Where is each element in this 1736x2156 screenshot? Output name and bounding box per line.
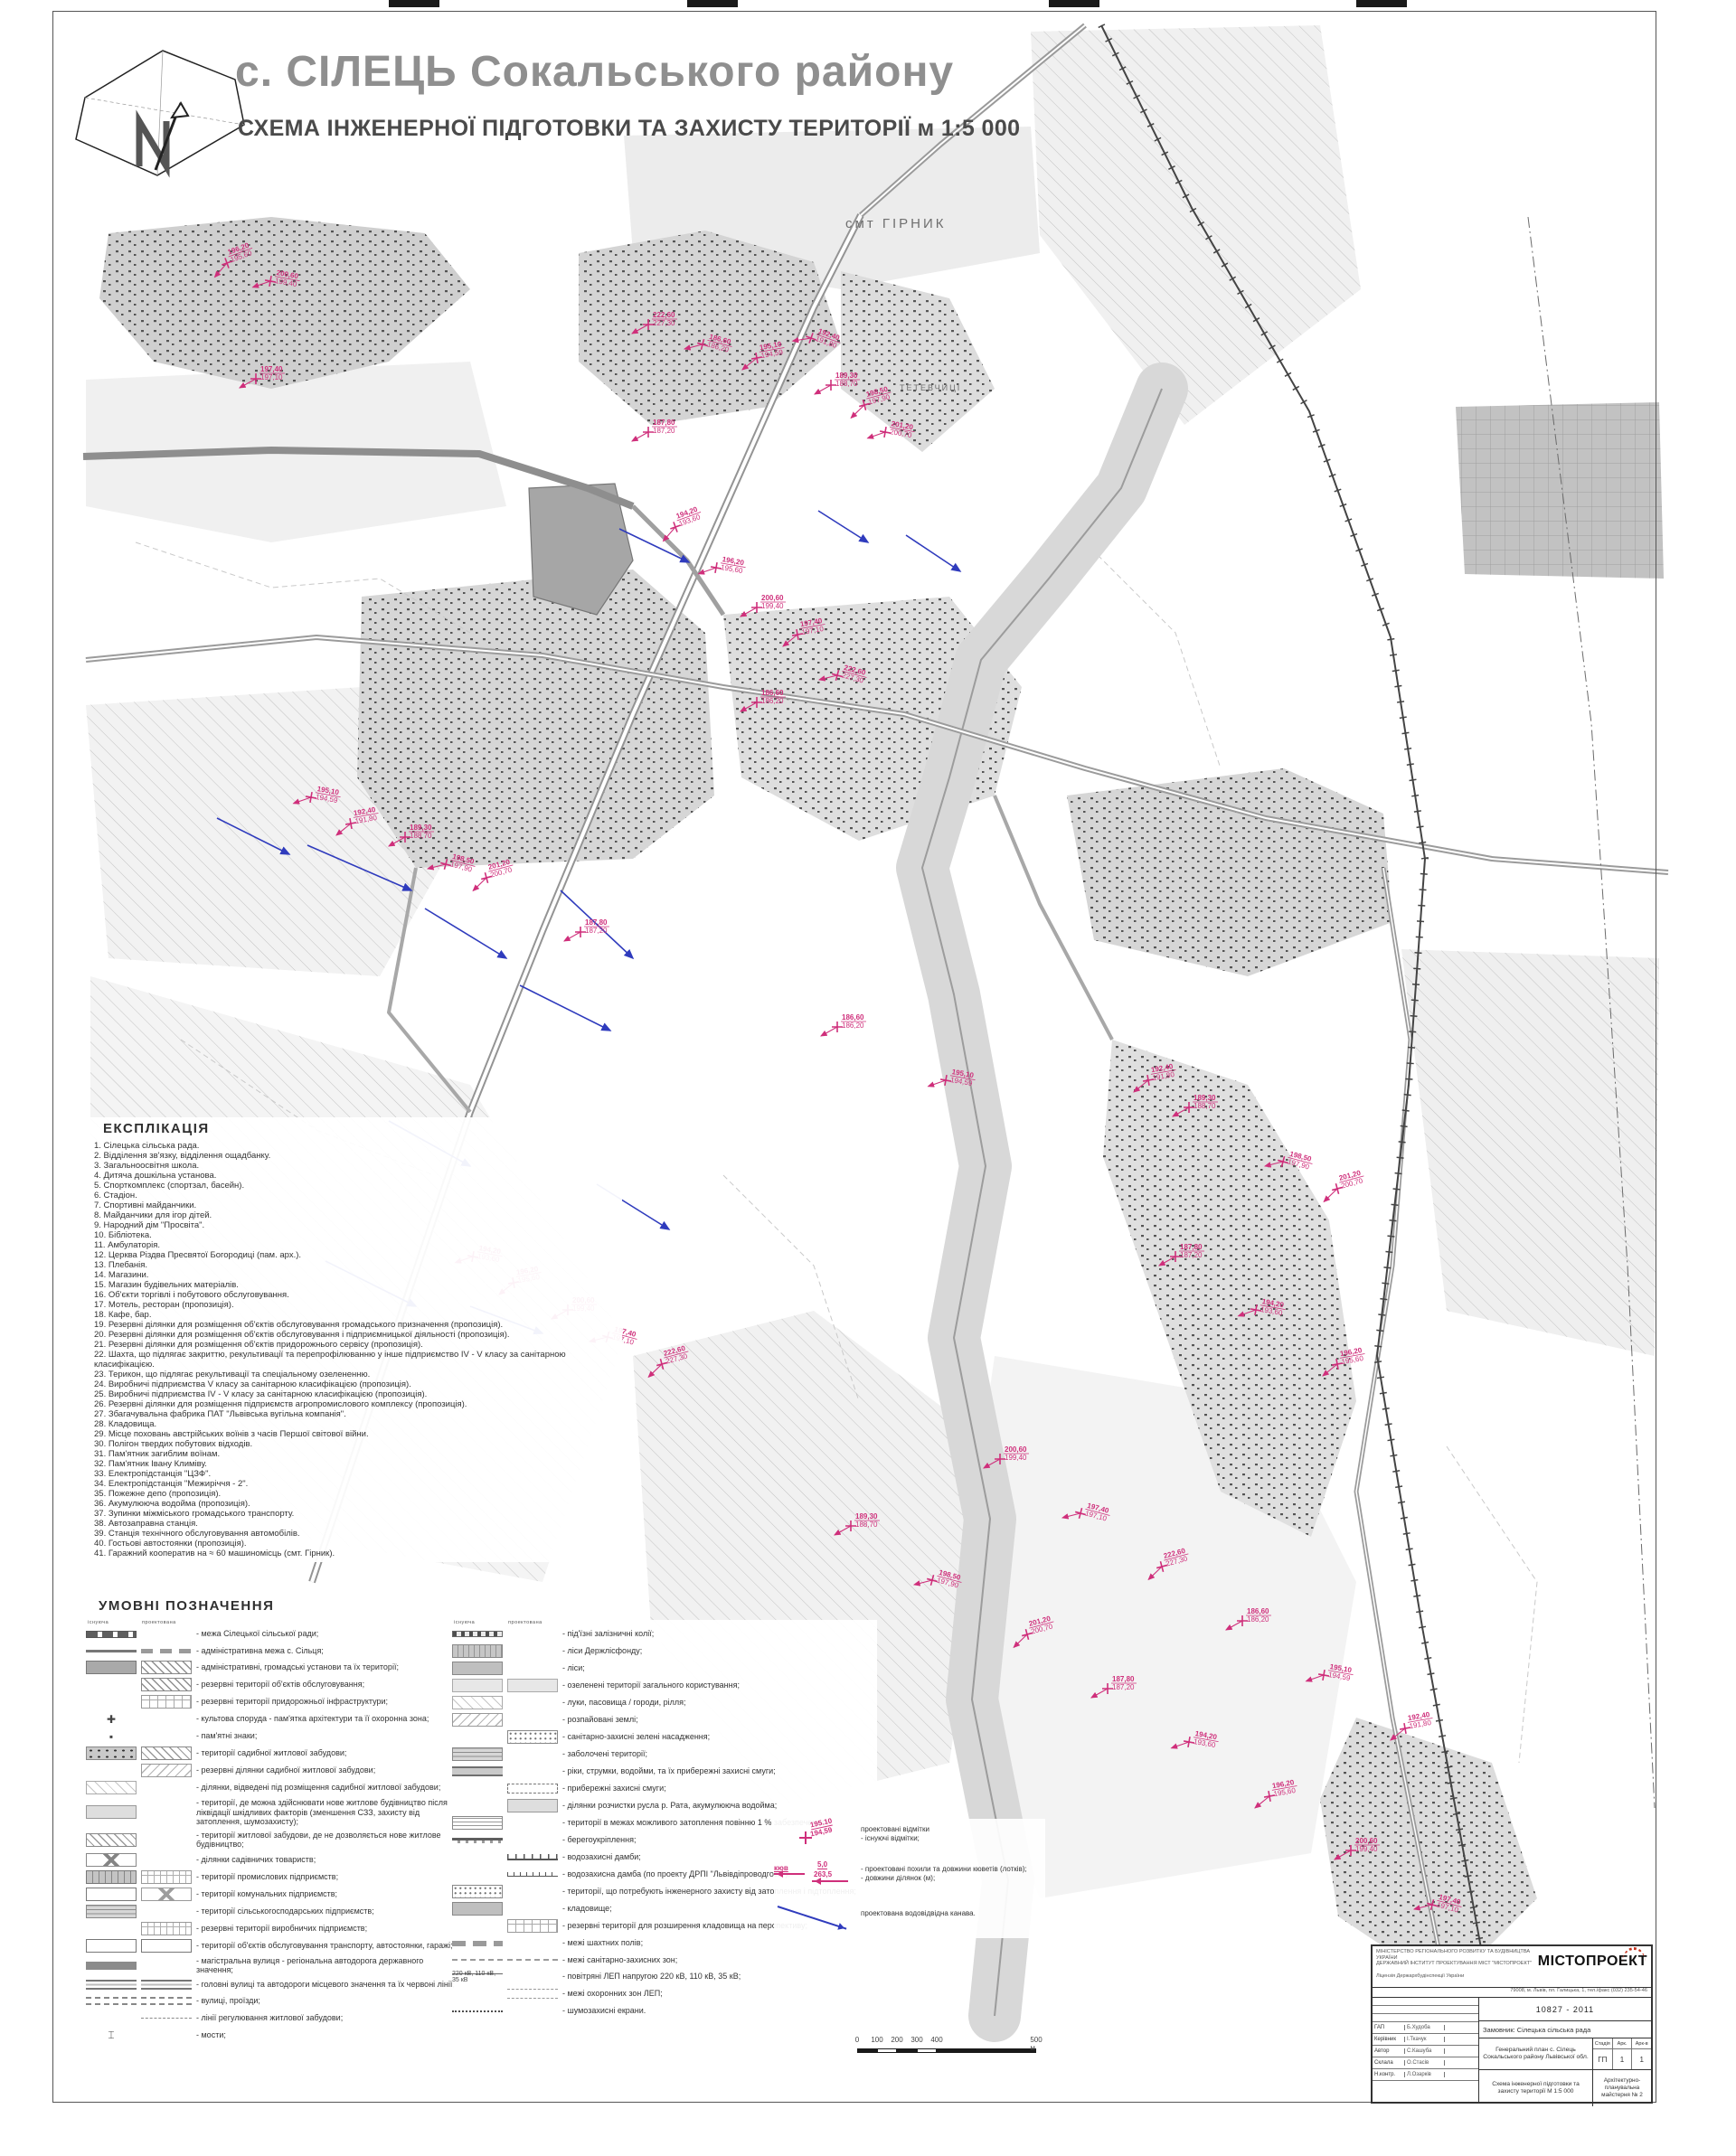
logo-arc-icon xyxy=(1622,1947,1646,1963)
explication-item: 11. Амбулаторія. xyxy=(94,1240,617,1250)
legend-label: - ділянки, відведені під розміщення сади… xyxy=(196,1783,440,1793)
legend-row: - санітарно-захисні зелені насадження; xyxy=(452,1730,877,1744)
legend-label: - території житлової забудови, де не доз… xyxy=(196,1831,455,1850)
legend-row: - межі санітарно-захисних зон; xyxy=(452,1954,877,1966)
legend-swatch-projected xyxy=(507,1679,558,1692)
explication-item: 6. Стадіон. xyxy=(94,1191,617,1200)
legend-swatch-existing: ⌶ xyxy=(86,2029,137,2042)
legend-row: - межі шахтних полів; xyxy=(452,1936,877,1950)
legend-row: - ділянки, відведені під розміщення сади… xyxy=(86,1781,455,1794)
legend-label: - ділянки садівничих товариств; xyxy=(196,1855,316,1865)
signature-table: ГАПБ.ХудобаКерівникІ.ТкачукАвторС.Кашуба… xyxy=(1373,1998,1479,2104)
legend-label: - водозахисні дамби; xyxy=(562,1852,641,1862)
legend-swatch-projected xyxy=(507,1833,558,1847)
legend-row: - головні вулиці та автодороги місцевого… xyxy=(86,1979,455,1991)
explication-item: 5. Спорткомплекс (спортзал, басейн). xyxy=(94,1181,617,1191)
legend-swatch-existing xyxy=(452,1816,503,1830)
signature-row: Н.контр.Л.Озарків xyxy=(1373,2069,1478,2081)
legend-swatch-existing xyxy=(452,1696,503,1709)
legend-column-headers: існуюча проектована xyxy=(88,1620,455,1625)
project-title-cell: Генеральний план с. Сілець Сокальського … xyxy=(1479,2038,1593,2069)
pink-legend-label: проектовані відмітки xyxy=(861,1825,929,1834)
legend-swatch-existing xyxy=(86,1650,137,1652)
legend-swatch-projected xyxy=(141,1853,192,1867)
legend-pink-slopes: кюв 5,0 263,5 - проектовані похили та до… xyxy=(774,1859,1045,1889)
legend-row: - ділянки садівничих товариств; xyxy=(86,1853,455,1867)
mistoproekt-logo: МІСТОПРОЕКТ xyxy=(1538,1954,1647,1970)
legend-swatch-existing: ✚ xyxy=(86,1712,137,1726)
legend-swatch-existing xyxy=(452,1782,503,1795)
legend-swatch-projected xyxy=(507,1959,558,1961)
legend-row: ▪- пам'ятні знаки; xyxy=(86,1729,455,1743)
explication-item: 27. Збагачувальна фабрика ПАТ "Львівська… xyxy=(94,1409,617,1419)
legend-swatch-projected xyxy=(507,1662,558,1675)
legend-label: - адміністративні, громадські установи т… xyxy=(196,1662,399,1672)
legend-swatch-existing xyxy=(86,1905,137,1918)
legend-swatch-projected xyxy=(141,1764,192,1777)
pink-legend-label: - довжини ділянок (м); xyxy=(861,1874,1027,1883)
legend-colhead-projected: проектована xyxy=(142,1620,194,1625)
legend-label: - території промислових підприємств; xyxy=(196,1872,338,1882)
legend-label: - прибережні захисні смуги; xyxy=(562,1784,666,1794)
legend-row: - резервні території придорожньої інфрас… xyxy=(86,1695,455,1709)
legend-row: 220 кВ, 110 кВ, 35 кВ- повітряні ЛЕП нап… xyxy=(452,1970,877,1983)
legend-label: - магістральна вулиця - регіональна авто… xyxy=(196,1956,455,1975)
legend-row: - магістральна вулиця - регіональна авто… xyxy=(86,1956,455,1975)
explication-item: 7. Спортивні майданчики. xyxy=(94,1200,617,1210)
explication-item: 10. Бібліотека. xyxy=(94,1230,617,1240)
legend-swatch-existing xyxy=(86,1888,137,1901)
legend-row: - території житлової забудови, де не доз… xyxy=(86,1831,455,1850)
sheet-title-cell: Схема інженерної підготовки та захисту т… xyxy=(1479,2070,1593,2106)
legend-label: - розпайовані землі; xyxy=(562,1715,638,1725)
legend-pink-marks: 195.10 194,59 проектовані відмітки - існ… xyxy=(774,1819,1045,1850)
stamp-org-line2: ДЕРЖАВНИЙ ІНСТИТУТ ПРОЕКТУВАННЯ МІСТ "МІ… xyxy=(1376,1961,1548,1967)
legend-row: - ліси; xyxy=(452,1662,877,1675)
legend-swatch-projected xyxy=(141,1980,192,1990)
drain-ditch-symbol xyxy=(774,1898,861,1929)
legend-swatch-existing xyxy=(86,1678,137,1691)
legend-swatch-existing xyxy=(452,1730,503,1744)
legend-row: - розпайовані землі; xyxy=(452,1713,877,1727)
legend-swatch-projected xyxy=(507,1644,558,1658)
explication-item: 28. Кладовища. xyxy=(94,1419,617,1429)
legend-swatch-existing xyxy=(86,1962,137,1970)
stamp-address: 79008, м. Львів, пл. Галицька, 1, тел./ф… xyxy=(1373,1988,1651,1998)
legend-swatch-existing xyxy=(452,1662,503,1675)
explication-heading: ЕКСПЛІКАЦІЯ xyxy=(103,1121,617,1136)
legend-row: - межі охоронних зон ЛЕП; xyxy=(452,1987,877,2001)
legend-label: - ділянки розчистки русла р. Рата, акуму… xyxy=(562,1801,777,1811)
legend-label: - луки, пасовища / городи, рілля; xyxy=(562,1698,686,1708)
legend-label: - лінії регулювання житлової забудови; xyxy=(196,2013,343,2023)
explication-item: 18. Кафе, бар. xyxy=(94,1310,617,1320)
legend-label: - заболочені території; xyxy=(562,1749,647,1759)
explication-item: 3. Загальноосвітня школа. xyxy=(94,1161,617,1171)
legend-swatch-projected xyxy=(141,1888,192,1901)
legend-swatch-projected xyxy=(507,1854,558,1860)
explication-item: 39. Станція технічного обслуговування ав… xyxy=(94,1529,617,1539)
legend-swatch-projected xyxy=(141,1781,192,1794)
legend-label: - території сільськогосподарських підпри… xyxy=(196,1907,374,1916)
legend-row: - адміністративна межа с. Сільця; xyxy=(86,1644,455,1657)
explication-item: 15. Магазин будівельних матеріалів. xyxy=(94,1280,617,1290)
legend-label: - межа Сілецької сільської ради; xyxy=(196,1629,318,1639)
legend-swatch-existing xyxy=(452,1838,503,1843)
legend-row: - озеленені території загального користу… xyxy=(452,1679,877,1692)
legend-swatch-existing xyxy=(452,1713,503,1727)
legend-swatch-existing xyxy=(86,1939,137,1953)
legend-label: - межі шахтних полів; xyxy=(562,1938,643,1948)
legend-swatch-existing: 220 кВ, 110 кВ, 35 кВ xyxy=(452,1973,503,1981)
legend-label: - ліси; xyxy=(562,1663,585,1673)
north-arrow-icon xyxy=(65,42,255,191)
legend-swatch-existing xyxy=(86,1695,137,1709)
signature-row-empty xyxy=(1373,2006,1478,2014)
legend-swatch-existing xyxy=(86,1746,137,1760)
legend-swatch-projected xyxy=(507,1989,558,1999)
legend-swatch-projected xyxy=(507,1784,558,1794)
legend-label: - мости; xyxy=(196,2030,226,2040)
project-number: 10827 - 2011 xyxy=(1479,1998,1651,2021)
legend-swatch-projected xyxy=(507,1713,558,1727)
legend-label: - території об'єктів обслуговування тран… xyxy=(196,1941,453,1951)
legend-label: - території садибної житлової забудови; xyxy=(196,1748,346,1758)
legend-swatch-existing xyxy=(86,1922,137,1935)
explication-item: 17. Мотель, ресторан (пропозиція). xyxy=(94,1300,617,1310)
explication-item: 1. Сілецька сільська рада. xyxy=(94,1141,617,1151)
legend-swatch-existing xyxy=(86,1805,137,1819)
legend-swatch-projected xyxy=(507,1799,558,1812)
legend-swatch-projected xyxy=(507,1816,558,1830)
explication-item: 19. Резервні ділянки для розміщення об'є… xyxy=(94,1320,617,1330)
legend-row: - луки, пасовища / городи, рілля; xyxy=(452,1696,877,1709)
explication-item: 20. Резервні ділянки для розміщення об'є… xyxy=(94,1330,617,1340)
legend-colhead-existing: існуюча xyxy=(88,1620,140,1625)
legend-column-headers: існуюча проектована xyxy=(454,1620,877,1625)
legend-row: - території, де можна здійснювати нове ж… xyxy=(86,1798,455,1827)
signature-row: ГАПБ.Худоба xyxy=(1373,2022,1478,2034)
legend-row: - території садибної житлової забудови; xyxy=(86,1746,455,1760)
legend-swatch-projected xyxy=(141,1729,192,1743)
legend-swatch-existing xyxy=(452,1747,503,1761)
explication-item: 14. Магазини. xyxy=(94,1270,617,1280)
legend-swatch-projected xyxy=(507,1765,558,1778)
legend-label: - резервні ділянки садибної житлової заб… xyxy=(196,1765,375,1775)
legend-swatch-existing xyxy=(452,1885,503,1898)
legend-row: - межа Сілецької сільської ради; xyxy=(86,1627,455,1641)
legend-row: - вулиці, проїзди; xyxy=(86,1995,455,2008)
legend-swatch-projected xyxy=(141,1833,192,1847)
legend-swatch-projected xyxy=(507,1627,558,1641)
legend-label: - ліси Держлісфонду; xyxy=(562,1646,642,1656)
fold-mark xyxy=(1049,0,1099,7)
fold-mark xyxy=(389,0,439,7)
plan-sheet: { "page": { "title": "с. СІЛЕЦЬ Сокальсь… xyxy=(0,0,1736,2156)
legend-swatch-existing xyxy=(86,1980,137,1990)
legend-panel: УМОВНІ ПОЗНАЧЕННЯ існуюча проектована - … xyxy=(86,1598,1053,1621)
legend-row: - резервні території об'єктів обслуговув… xyxy=(86,1678,455,1691)
legend-swatch-projected xyxy=(141,1712,192,1726)
legend-row: ✚- культова споруда - пам'ятка архітекту… xyxy=(86,1712,455,1726)
legend-swatch-projected xyxy=(141,1627,192,1641)
legend-swatch-existing xyxy=(86,1833,137,1847)
explication-item: 31. Пам'ятник загиблим воїнам. xyxy=(94,1449,617,1459)
legend-row: - резервні території виробничих підприєм… xyxy=(86,1922,455,1935)
legend-swatch-projected xyxy=(141,2018,192,2019)
scale-bar-segment xyxy=(857,2048,877,2053)
legend-swatch-existing xyxy=(452,1902,503,1916)
scale-bar-segment xyxy=(877,2048,897,2053)
legend-swatch-existing xyxy=(452,1850,503,1864)
legend-swatch-existing xyxy=(86,1997,137,2005)
stamp-license: Ліцензія Держархбудінспекції України xyxy=(1376,1973,1548,1980)
scale-bar-label: 0 xyxy=(855,2036,859,2044)
scale-bar-label: 100 xyxy=(871,2036,882,2044)
legend-swatch-projected xyxy=(507,1872,558,1877)
scale-bar-label: 200 xyxy=(891,2036,902,2044)
legend-swatch-existing: ▪ xyxy=(86,1729,137,1743)
legend-row: - заболочені території; xyxy=(452,1747,877,1761)
legend-swatch-projected xyxy=(141,2029,192,2042)
legend-label: - санітарно-захисні зелені насадження; xyxy=(562,1732,710,1742)
legend-row: - адміністративні, громадські установи т… xyxy=(86,1661,455,1674)
explication-item: 9. Народний дім "Просвіта". xyxy=(94,1220,617,1230)
legend-row: - території промислових підприємств; xyxy=(86,1870,455,1884)
legend-label: - повітряні ЛЕП напругою 220 кВ, 110 кВ,… xyxy=(562,1972,741,1982)
elevation-marks-symbol: 195.10 194,59 xyxy=(774,1819,861,1850)
explication-item: 29. Місце поховань австрійських воїнів з… xyxy=(94,1429,617,1439)
stamp-org-line1: МІНІСТЕРСТВО РЕГІОНАЛЬНОГО РОЗВИТКУ ТА Б… xyxy=(1376,1949,1548,1961)
scale-bar-segment xyxy=(897,2048,917,2053)
legend-swatch-existing xyxy=(452,1959,503,1961)
explication-item: 25. Виробничі підприємства IV - V класу … xyxy=(94,1389,617,1399)
legend-row: - ділянки розчистки русла р. Рата, акуму… xyxy=(452,1799,877,1812)
legend-label: - території комунальних підприємств; xyxy=(196,1889,337,1899)
legend-label: - території, де можна здійснювати нове ж… xyxy=(196,1798,455,1827)
legend-swatch-existing xyxy=(452,1644,503,1658)
legend-swatch-projected xyxy=(507,2004,558,2018)
legend-swatch-projected xyxy=(141,1870,192,1884)
legend-row: - резервні ділянки садибної житлової заб… xyxy=(86,1764,455,1777)
legend-label: - берегоукріплення; xyxy=(562,1835,636,1845)
legend-swatch-projected xyxy=(141,1939,192,1953)
legend-label: - межі охоронних зон ЛЕП; xyxy=(562,1989,663,1999)
explication-item: 16. Об'єкти торгівлі і побутового обслуг… xyxy=(94,1290,617,1300)
legend-label: - під'їзні залізничні колії; xyxy=(562,1629,654,1639)
legend-swatch-projected xyxy=(507,1885,558,1898)
legend-swatch-projected xyxy=(141,1997,192,2005)
scale-bar-label: 500 м xyxy=(1030,2036,1042,2052)
legend-swatch-existing xyxy=(86,1631,137,1638)
stage-cell: Арк.1 xyxy=(1613,2038,1633,2069)
legend-row: - під'їзні залізничні колії; xyxy=(452,1627,877,1641)
stage-cell: СтадіяГП xyxy=(1593,2038,1613,2069)
legend-swatch-projected xyxy=(141,1922,192,1935)
explication-item: 26. Резервні ділянки для розміщення підп… xyxy=(94,1399,617,1409)
legend-swatch-projected xyxy=(141,1746,192,1760)
legend-swatch-projected xyxy=(141,1695,192,1709)
legend-label: - кладовище; xyxy=(562,1904,612,1914)
explication-item: 21. Резервні ділянки для розміщення об'є… xyxy=(94,1340,617,1350)
page-subtitle: СХЕМА ІНЖЕНЕРНОЇ ПІДГОТОВКИ ТА ЗАХИСТУ Т… xyxy=(238,116,1020,142)
signature-row: КерівникІ.Ткачук xyxy=(1373,2034,1478,2046)
explication-item: 37. Зупинки міжміського громадського тра… xyxy=(94,1509,617,1519)
explication-item: 32. Пам'ятник Івану Климіву. xyxy=(94,1459,617,1469)
legend-pink-panel: 195.10 194,59 проектовані відмітки - існ… xyxy=(774,1819,1045,1938)
legend-swatch-projected xyxy=(141,1805,192,1819)
legend-swatch-existing xyxy=(452,1679,503,1692)
pink-legend-label: - проектовані похили та довжини кюветів … xyxy=(861,1865,1027,1874)
legend-swatch-existing xyxy=(86,1764,137,1777)
legend-swatch-existing xyxy=(452,1919,503,1933)
legend-swatch-projected xyxy=(141,1905,192,1918)
legend-swatch-projected xyxy=(507,1936,558,1950)
legend-swatch-existing xyxy=(452,2010,503,2012)
legend-drain-ditch: проектована водовідвідна канава. xyxy=(774,1898,1045,1929)
legend-swatch-existing xyxy=(452,1631,503,1637)
legend-row: - території об'єктів обслуговування тран… xyxy=(86,1939,455,1953)
explication-item: 12. Церква Різдва Пресвятої Богородиці (… xyxy=(94,1250,617,1260)
department-cell: Архітектурно-планувальна майстерня № 2 xyxy=(1593,2070,1651,2106)
stage-cells: СтадіяГПАрк.1Арк-в1 xyxy=(1593,2038,1651,2069)
title-block: МІНІСТЕРСТВО РЕГІОНАЛЬНОГО РОЗВИТКУ ТА Б… xyxy=(1371,1944,1653,2104)
signature-row: СклалаО.Стасів xyxy=(1373,2057,1478,2069)
legend-label: - культова споруда - пам'ятка архітектур… xyxy=(196,1714,429,1724)
legend-label: - резервні території придорожньої інфрас… xyxy=(196,1697,388,1707)
legend-row: - території сільськогосподарських підпри… xyxy=(86,1905,455,1918)
stage-cell: Арк-в1 xyxy=(1632,2038,1651,2069)
legend-label: - озеленені території загального користу… xyxy=(562,1681,740,1690)
pink-arrow-icon xyxy=(812,1880,848,1882)
explication-item: 22. Шахта, що підлягає закриттю, рекульт… xyxy=(94,1350,617,1370)
legend-swatch-projected xyxy=(507,1747,558,1761)
legend-swatch-existing xyxy=(452,1766,503,1776)
legend-swatch-existing xyxy=(86,1781,137,1794)
legend-label: - адміністративна межа с. Сільця; xyxy=(196,1646,324,1656)
legend-label: - ріки, струмки, водойми, та їх прибереж… xyxy=(562,1766,776,1776)
explication-item: 34. Електропідстанція "Межиріччя - 2". xyxy=(94,1479,617,1489)
explication-item: 40. Гостьові автостоянки (пропозиція). xyxy=(94,1539,617,1549)
legend-label: - межі санітарно-захисних зон; xyxy=(562,1955,677,1965)
legend-row: - лінії регулювання житлової забудови; xyxy=(86,2011,455,2025)
legend-swatch-projected xyxy=(141,1678,192,1691)
legend-label: - резервні території виробничих підприєм… xyxy=(196,1924,367,1934)
client-row: Замовник: Сілецька сільська рада xyxy=(1479,2021,1651,2038)
sheet: 196,20195,60200,60199,40197,40197,10222,… xyxy=(0,0,1736,2156)
pink-legend-label: - існуючі відмітки; xyxy=(861,1834,929,1843)
legend-row: - ліси Держлісфонду; xyxy=(452,1644,877,1658)
explication-item: 13. Плебанія. xyxy=(94,1260,617,1270)
legend-swatch-existing xyxy=(86,1661,137,1674)
legend-row: - території комунальних підприємств; xyxy=(86,1888,455,1901)
pink-legend-label: проектована водовідвідна канава. xyxy=(861,1909,976,1918)
slope-length-symbol: кюв 5,0 263,5 xyxy=(774,1859,861,1889)
legend-swatch-projected xyxy=(141,1649,192,1653)
fold-mark xyxy=(1356,0,1407,7)
scale-bar-segment xyxy=(917,2048,937,2053)
legend-swatch-projected xyxy=(507,1970,558,1983)
explication-item: 41. Гаражний кооператив на ≈ 60 машиномі… xyxy=(94,1549,617,1558)
explication-item: 35. Пожежне депо (пропозиція). xyxy=(94,1489,617,1499)
scale-bar-segment xyxy=(937,2048,1036,2053)
legend-label: - резервні території для розширення клад… xyxy=(562,1921,807,1931)
explication-item: 2. Відділення зв'язку, відділення ощадба… xyxy=(94,1151,617,1161)
explication-panel: ЕКСПЛІКАЦІЯ 1. Сілецька сільська рада.2.… xyxy=(89,1117,622,1562)
scale-bar-label: 400 xyxy=(930,2036,942,2044)
legend-swatch-projected xyxy=(507,1730,558,1744)
legend-swatch-projected xyxy=(507,1919,558,1933)
explication-item: 23. Терикон, що підлягає рекультивації т… xyxy=(94,1370,617,1379)
signature-row-empty xyxy=(1373,2014,1478,2022)
legend-label: - резервні території об'єктів обслуговув… xyxy=(196,1680,364,1690)
legend-label: - вулиці, проїзди; xyxy=(196,1996,260,2006)
legend-row: - ріки, струмки, водойми, та їх прибереж… xyxy=(452,1765,877,1778)
explication-item: 38. Автозаправна станція. xyxy=(94,1519,617,1529)
explication-item: 36. Акумулююча водойма (пропозиція). xyxy=(94,1499,617,1509)
explication-item: 33. Електропідстанція "ЦЗФ". xyxy=(94,1469,617,1479)
legend-label: - шумозахисні екрани. xyxy=(562,2006,646,2016)
legend-label: - пам'ятні знаки; xyxy=(196,1731,257,1741)
legend-swatch-existing xyxy=(86,2011,137,2025)
legend-swatch-existing xyxy=(452,1941,503,1946)
signature-row-empty xyxy=(1373,1998,1478,2006)
legend-label: - головні вулиці та автодороги місцевого… xyxy=(196,1980,455,1990)
scale-bar-label: 300 xyxy=(910,2036,922,2044)
legend-swatch-existing xyxy=(452,1868,503,1881)
explication-item: 30. Полігон твердих побутових відходів. xyxy=(94,1439,617,1449)
signature-row: АвторС.Кашуба xyxy=(1373,2046,1478,2057)
legend-swatch-existing xyxy=(86,1853,137,1867)
page-title: с. СІЛЕЦЬ Сокальського району xyxy=(235,47,954,97)
legend-row: - прибережні захисні смуги; xyxy=(452,1782,877,1795)
legend-swatch-existing xyxy=(452,1799,503,1812)
pink-arrow-icon xyxy=(774,1873,805,1875)
legend-swatch-existing xyxy=(86,1870,137,1884)
legend-swatch-projected xyxy=(507,1902,558,1916)
legend-swatch-existing xyxy=(452,1987,503,2001)
legend-heading: УМОВНІ ПОЗНАЧЕННЯ xyxy=(99,1598,1053,1614)
fold-mark xyxy=(687,0,738,7)
legend-label: - водозахисна дамба (по проекту ДРПІ "Ль… xyxy=(562,1869,790,1879)
explication-item: 4. Дитяча дошкільна установа. xyxy=(94,1171,617,1181)
legend-row: - шумозахисні екрани. xyxy=(452,2004,877,2018)
legend-swatch-projected xyxy=(507,1696,558,1709)
explication-item: 24. Виробничі підприємства V класу за са… xyxy=(94,1379,617,1389)
explication-item: 8. Майданчики для ігор дітей. xyxy=(94,1210,617,1220)
legend-swatch-projected xyxy=(141,1959,192,1972)
legend-swatch-projected xyxy=(141,1661,192,1674)
legend-row: ⌶- мости; xyxy=(86,2029,455,2042)
blue-ditch-icon xyxy=(778,1906,847,1930)
legend-column-left: існуюча проектована - межа Сілецької сіл… xyxy=(86,1620,455,2046)
